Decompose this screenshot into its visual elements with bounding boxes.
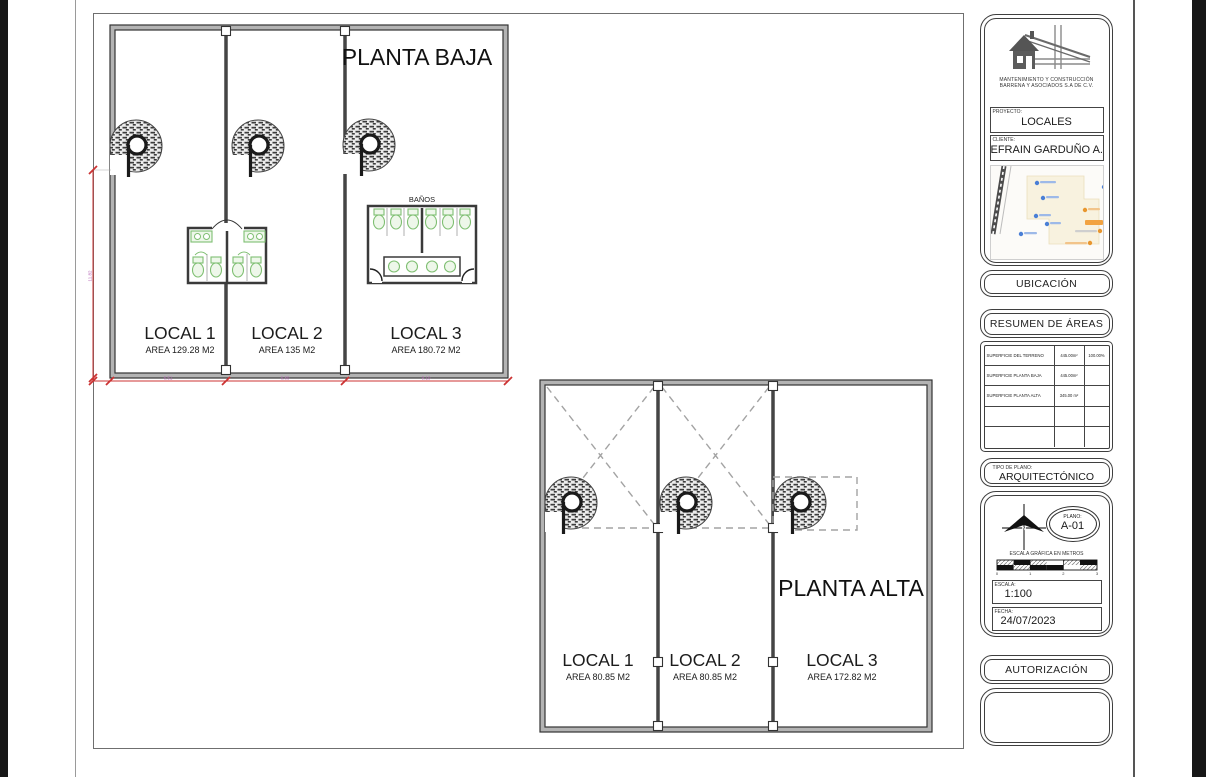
areas-row-label xyxy=(985,407,1055,427)
proyecto-field: PROYECTO: LOCALES xyxy=(990,107,1104,133)
north-arrow-icon: N xyxy=(999,502,1049,552)
areas-row-pct xyxy=(1085,427,1109,447)
plano-value: A-01 xyxy=(1050,520,1096,532)
escala-label: ESCALA: xyxy=(995,582,1016,588)
ubicacion-box: UBICACIÓN xyxy=(980,270,1113,297)
ubicacion-label: UBICACIÓN xyxy=(984,274,1110,294)
svg-text:0: 0 xyxy=(995,571,998,576)
graphic-scale-label: ESCALA GRÁFICA EN METROS xyxy=(985,551,1109,557)
local-name: LOCAL 1 xyxy=(562,650,633,670)
graphic-scale-bar: 0 1 2 3 xyxy=(995,558,1099,576)
proyecto-label: PROYECTO: xyxy=(993,109,1022,115)
autorizacion-label: AUTORIZACIÓN xyxy=(984,659,1110,681)
areas-row-value: 345.00 m² xyxy=(1055,386,1085,406)
titleblock-header-box: MANTENIMIENTO Y CONSTRUCCIÓN BARRENA Y A… xyxy=(980,14,1113,266)
plan-sheet-canvas: BAÑOS 6.51 6.80 9.10 11. xyxy=(0,0,1206,777)
spiral-stair-icon xyxy=(545,477,597,534)
cliente-value: EFRAIN GARDUÑO A. xyxy=(991,144,1103,156)
areas-row-label: SUPERFICIE PLANTA ALTA xyxy=(985,386,1055,406)
areas-row-value xyxy=(1055,427,1085,447)
spiral-stair-icon xyxy=(110,120,162,177)
tipo-plano-box: TIPO DE PLANO: ARQUITECTÓNICO xyxy=(980,458,1113,487)
svg-text:3: 3 xyxy=(1095,571,1098,576)
local-area: AREA 80.85 M2 xyxy=(566,672,630,682)
svg-text:11.82: 11.82 xyxy=(88,270,93,281)
areas-row-label xyxy=(985,427,1055,447)
areas-row-pct: 100.00% xyxy=(1085,346,1109,366)
planta-baja-plan: BAÑOS 6.51 6.80 9.10 11. xyxy=(88,25,513,385)
svg-text:1: 1 xyxy=(1029,571,1032,576)
local-name: LOCAL 1 xyxy=(144,323,215,343)
restroom-core xyxy=(188,220,266,283)
signature-box xyxy=(980,688,1113,746)
areas-table: SUPERFICIE DEL TERRENO 445.00m² 100.00% … xyxy=(985,346,1109,448)
local-name: LOCAL 2 xyxy=(251,323,322,343)
areas-row-label: SUPERFICIE DEL TERRENO xyxy=(985,346,1055,366)
areas-row-value: 445.00m² xyxy=(1055,366,1085,386)
local-name: LOCAL 3 xyxy=(806,650,877,670)
proyecto-value: LOCALES xyxy=(991,116,1103,128)
fecha-field: FECHA: 24/07/2023 xyxy=(992,607,1102,631)
local-name: LOCAL 2 xyxy=(669,650,740,670)
local-area: AREA 129.28 M2 xyxy=(145,345,214,355)
areas-row-value xyxy=(1055,407,1085,427)
fecha-label: FECHA: xyxy=(995,609,1013,615)
autorizacion-box: AUTORIZACIÓN xyxy=(980,655,1113,684)
areas-row-pct xyxy=(1085,366,1109,386)
escala-field: ESCALA: 1:100 xyxy=(992,580,1102,604)
local-area: AREA 135 M2 xyxy=(259,345,316,355)
areas-table-box: SUPERFICIE DEL TERRENO 445.00m² 100.00% … xyxy=(980,341,1113,452)
spiral-stair-icon xyxy=(774,477,826,534)
svg-text:6.51: 6.51 xyxy=(164,376,173,381)
spiral-stair-icon xyxy=(660,477,712,534)
company-logo-icon xyxy=(997,23,1097,75)
resumen-areas-title: RESUMEN DE ÁREAS xyxy=(984,313,1110,335)
local-name: LOCAL 3 xyxy=(390,323,461,343)
resumen-areas-header: RESUMEN DE ÁREAS xyxy=(980,309,1113,338)
cliente-field: CLIENTE: EFRAIN GARDUÑO A. xyxy=(990,135,1104,161)
local-area: AREA 80.85 M2 xyxy=(673,672,737,682)
planta-baja-title: PLANTA BAJA xyxy=(342,44,493,70)
banos-label: BAÑOS xyxy=(409,195,435,204)
local-area: AREA 172.82 M2 xyxy=(807,672,876,682)
planta-alta-title: PLANTA ALTA xyxy=(778,575,924,601)
banos-block: BAÑOS xyxy=(368,195,476,283)
location-map xyxy=(990,165,1104,260)
svg-text:9.10: 9.10 xyxy=(422,376,431,381)
areas-row-label: SUPERFICIE PLANTA BAJA xyxy=(985,366,1055,386)
escala-value: 1:100 xyxy=(1005,588,1101,600)
local-area: AREA 180.72 M2 xyxy=(391,345,460,355)
planta-alta-plan: PLANTA ALTA LOCAL 1 AREA 80.85 M2 LOCAL … xyxy=(540,380,932,732)
areas-row-value: 445.00m² xyxy=(1055,346,1085,366)
areas-row-pct xyxy=(1085,386,1109,406)
fecha-value: 24/07/2023 xyxy=(1001,615,1101,627)
company-name: MANTENIMIENTO Y CONSTRUCCIÓN BARRENA Y A… xyxy=(985,77,1109,89)
svg-text:6.80: 6.80 xyxy=(281,376,290,381)
plano-number-oval: PLANO: A-01 xyxy=(1046,506,1100,542)
tipo-plano-label: TIPO DE PLANO: xyxy=(993,465,1033,471)
areas-row-pct xyxy=(1085,407,1109,427)
spiral-stair-icon xyxy=(232,120,284,177)
svg-text:2: 2 xyxy=(1062,571,1065,576)
svg-text:N: N xyxy=(1021,525,1026,532)
tipo-plano-value: ARQUITECTÓNICO xyxy=(985,471,1109,483)
spiral-stair-icon xyxy=(343,119,395,176)
cliente-label: CLIENTE: xyxy=(993,137,1016,143)
scale-date-box: N PLANO: A-01 ESCALA GRÁFICA EN METROS xyxy=(980,491,1113,637)
